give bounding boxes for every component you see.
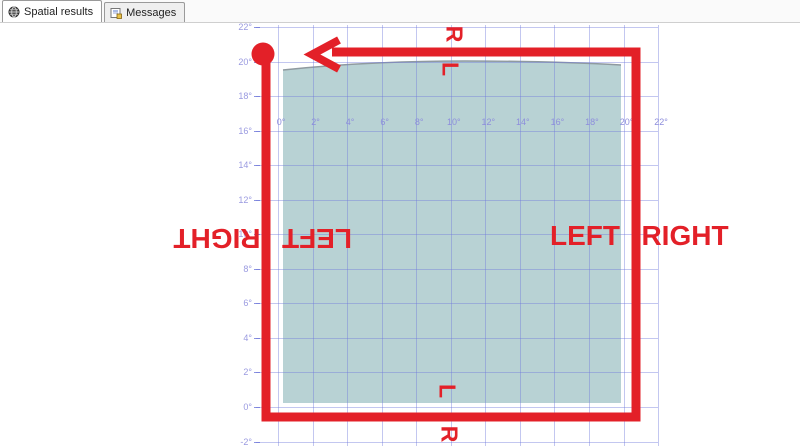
x-tick-label: 14° (516, 117, 530, 127)
y-axis-tick (254, 407, 260, 408)
gridline-vertical (382, 25, 383, 446)
y-tick-label: 6° (226, 298, 252, 308)
y-tick-label: 12° (226, 195, 252, 205)
tab-messages-label: Messages (126, 7, 176, 19)
y-axis-tick (254, 96, 260, 97)
x-tick-label: 0° (277, 117, 286, 127)
x-tick-label: 22° (654, 117, 668, 127)
y-axis-tick (254, 338, 260, 339)
gridline-vertical (589, 25, 590, 446)
x-tick-label: 6° (380, 117, 389, 127)
spatial-results-plot: 0°2°4°6°8°10°12°14°16°18°20°22°22°20°18°… (0, 23, 800, 446)
y-axis-tick (254, 303, 260, 304)
y-tick-label: 18° (226, 91, 252, 101)
label-left-inside: LEFT (282, 222, 352, 254)
gridline-vertical (485, 25, 486, 446)
y-axis-tick (254, 200, 260, 201)
x-tick-label: 18° (585, 117, 599, 127)
x-tick-label: 10° (447, 117, 461, 127)
y-tick-label: 14° (226, 160, 252, 170)
x-tick-label: 20° (620, 117, 634, 127)
gridline-horizontal (256, 27, 658, 28)
y-tick-label: 10° (226, 229, 252, 239)
gridline-horizontal (256, 234, 658, 235)
route-start-dot (252, 43, 275, 66)
gridline-vertical (624, 25, 625, 446)
x-tick-label: 2° (311, 117, 320, 127)
gridline-horizontal (256, 200, 658, 201)
label-left-outside: RIGHT (173, 222, 260, 254)
y-tick-label: -2° (226, 437, 252, 447)
label-right-outside: RIGHT (641, 220, 728, 252)
y-tick-label: 2° (226, 367, 252, 377)
y-tick-label: 16° (226, 126, 252, 136)
results-tab-bar: Spatial results Messages (0, 0, 800, 23)
gridline-vertical (313, 25, 314, 446)
y-axis-tick (254, 269, 260, 270)
gridline-horizontal (256, 442, 658, 443)
label-bottom-right-of-path: R (436, 426, 463, 443)
x-tick-label: 12° (481, 117, 495, 127)
y-axis-tick (254, 372, 260, 373)
tab-messages[interactable]: Messages (104, 2, 185, 22)
route-labels: R L L R RIGHT LEFT LEFT RIGHT (0, 0, 800, 446)
x-tick-label: 16° (551, 117, 565, 127)
axis-labels: 0°2°4°6°8°10°12°14°16°18°20°22°22°20°18°… (0, 0, 800, 446)
tab-spatial-results-label: Spatial results (24, 6, 93, 18)
gridline-vertical (347, 25, 348, 446)
gridline-horizontal (256, 96, 658, 97)
gridline-horizontal (256, 372, 658, 373)
gridline-vertical (278, 25, 279, 446)
label-top-left-of-path: L (437, 62, 464, 76)
y-axis-tick (254, 234, 260, 235)
grid (0, 0, 800, 446)
y-axis-tick (254, 165, 260, 166)
gridline-horizontal (256, 131, 658, 132)
gridline-horizontal (256, 407, 658, 408)
gridline-horizontal (256, 303, 658, 304)
x-tick-label: 4° (346, 117, 355, 127)
gridline-vertical (520, 25, 521, 446)
messages-icon (110, 7, 122, 19)
y-tick-label: 22° (226, 22, 252, 32)
y-axis-tick (254, 131, 260, 132)
gridline-vertical (658, 25, 659, 446)
tab-spatial-results[interactable]: Spatial results (2, 0, 102, 22)
y-axis-tick (254, 442, 260, 443)
y-tick-label: 8° (226, 264, 252, 274)
result-polygon (0, 0, 800, 446)
gridline-horizontal (256, 338, 658, 339)
gridline-vertical (451, 25, 452, 446)
globe-icon (8, 6, 20, 18)
y-axis-tick (254, 62, 260, 63)
x-tick-label: 8° (415, 117, 424, 127)
label-top-right-of-path: R (441, 26, 468, 43)
label-right-inside: LEFT (550, 220, 620, 252)
label-bottom-left-of-path: L (434, 384, 461, 398)
y-tick-label: 4° (226, 333, 252, 343)
gridline-vertical (554, 25, 555, 446)
gridline-vertical (416, 25, 417, 446)
red-route-path (0, 0, 800, 446)
y-axis-tick (254, 27, 260, 28)
gridline-horizontal (256, 165, 658, 166)
y-tick-label: 0° (226, 402, 252, 412)
gridline-horizontal (256, 269, 658, 270)
y-tick-label: 20° (226, 57, 252, 67)
gridline-horizontal (256, 62, 658, 63)
